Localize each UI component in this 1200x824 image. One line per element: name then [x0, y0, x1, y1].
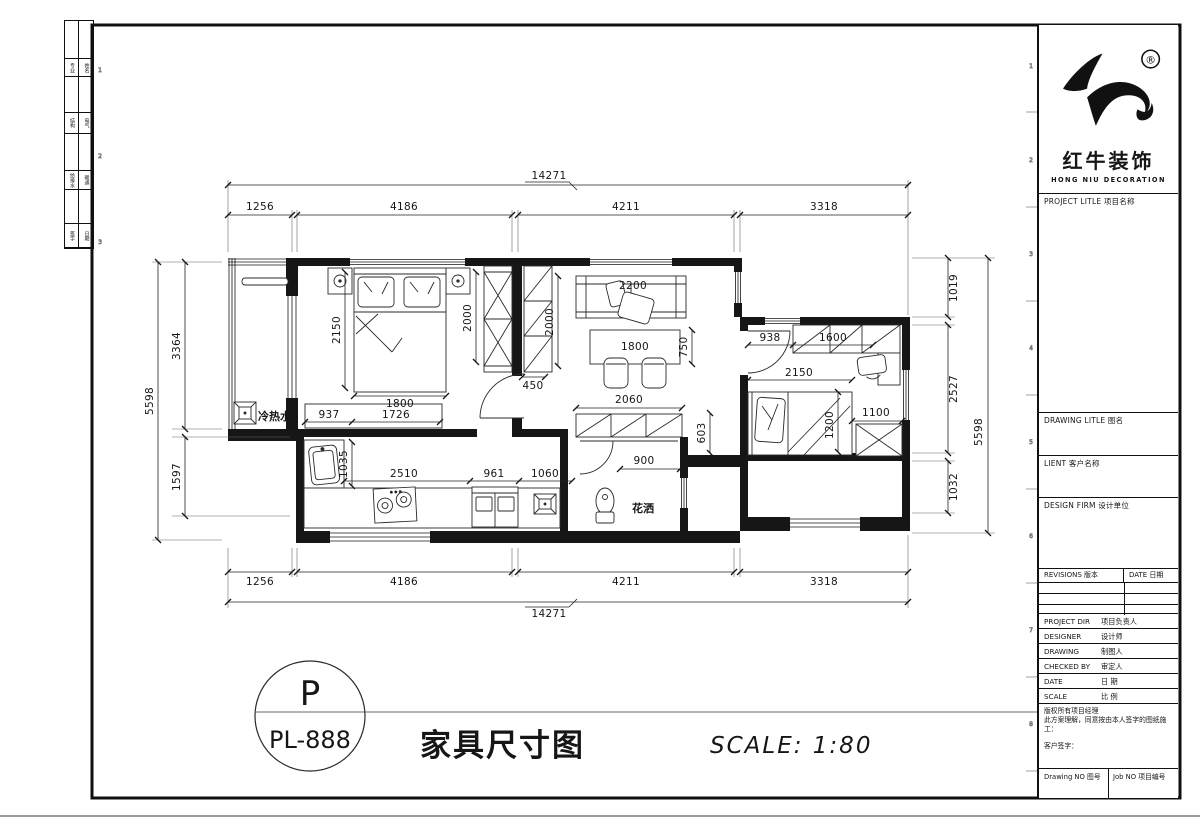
dim-left-3364: 3364	[171, 332, 183, 360]
drawing-title-label: DRAWING LITLE 图名	[1039, 413, 1178, 426]
credit-rows: PROJECT DIR 项目负责人 DESIGNER 设计师 DRAWING 制…	[1039, 613, 1178, 703]
note-line-3: 客户签字：	[1044, 742, 1176, 751]
signoff-empty-cell	[65, 77, 79, 113]
bath-door	[580, 441, 613, 474]
dim-sofa-2200: 2200	[619, 280, 647, 292]
note-line-2: 此方案理解，同意按由本人签字的图纸施工：	[1044, 716, 1176, 734]
fold-mark: 8	[1029, 721, 1033, 728]
signoff-empty-cell	[65, 21, 79, 59]
nightstand-left	[328, 268, 352, 294]
brand-logo-area: ® 红牛装饰 HONG NIU DECORATION	[1039, 25, 1178, 193]
dim-bottom-3318: 3318	[810, 576, 838, 588]
dim-kitchen-961: 961	[484, 468, 505, 480]
copyright-notes: 版权所有项目经理 此方案理解，同意按由本人签字的图纸施工： 客户签字：	[1039, 703, 1178, 768]
dim-top-1256: 1256	[246, 201, 274, 213]
drawing-title: 家具尺寸图	[420, 728, 585, 764]
number-row: Drawing NO 图号 Job NO 项目编号	[1039, 768, 1178, 798]
dim-top-4186: 4186	[390, 201, 418, 213]
dim-top-total: 14271	[532, 170, 567, 182]
floor-plan-drawing: 1 2 3 4 5 6 7 8 1 2 3	[0, 0, 1200, 824]
dim-kitchen-1035: 1035	[338, 450, 350, 478]
signoff-empty-cell	[79, 134, 93, 171]
dim-closet-450: 450	[523, 380, 544, 392]
dim-table-1800: 1800	[621, 341, 649, 353]
fold-mark: 2	[1029, 157, 1033, 164]
sheet-badge-number: PL-888	[269, 726, 351, 754]
dim-right-2527: 2527	[948, 375, 960, 403]
sheet-badge-letter: P	[300, 674, 321, 714]
washing-machine	[472, 487, 518, 527]
dim-shelf-938: 938	[760, 332, 781, 344]
dim-top-4211: 4211	[612, 201, 640, 213]
signoff-cell: 给排水	[65, 171, 79, 190]
dim-shelf-1600: 1600	[819, 332, 847, 344]
dim-bed2-1200: 1200	[824, 411, 836, 439]
dim-closet-2000-left: 2000	[462, 304, 474, 332]
dim-right-5598: 5598	[973, 418, 985, 446]
drawing-scale: SCALE: 1:80	[710, 733, 872, 759]
project-title-label: PROJECT LITLE 项目名称	[1039, 194, 1178, 207]
revision-row	[1039, 583, 1178, 594]
wardrobe-x	[484, 266, 512, 372]
project-title-section: PROJECT LITLE 项目名称	[1039, 193, 1178, 412]
signoff-empty-cell	[79, 190, 93, 224]
label-cold-hot-water: 冷热水	[258, 409, 292, 423]
revisions-date-label: DATE 日期	[1124, 569, 1163, 582]
bull-logo-icon: ®	[1054, 47, 1164, 139]
credit-row: CHECKED BY 审定人	[1039, 658, 1178, 673]
revision-row	[1039, 594, 1178, 605]
dim-kitchen-2510: 2510	[390, 468, 418, 480]
kitchen-sink	[308, 445, 340, 486]
fold-mark: 7	[1029, 627, 1033, 634]
double-bed	[354, 268, 446, 392]
signoff-cell: 专业	[65, 59, 79, 77]
extension-lines	[152, 180, 995, 608]
credit-row: DATE 日 期	[1039, 673, 1178, 688]
drawing-no-label: Drawing NO 图号	[1039, 769, 1109, 798]
brand-name-en: HONG NIU DECORATION	[1039, 176, 1178, 184]
strip-mark: 2	[98, 153, 102, 160]
dim-bottom-4186: 4186	[390, 576, 418, 588]
credit-row: SCALE 比 例	[1039, 688, 1178, 703]
revisions-table: REVISIONS 版本 DATE 日期	[1039, 568, 1178, 613]
drawing-title-section: DRAWING LITLE 图名	[1039, 412, 1178, 455]
design-firm-section: DESIGN FIRM 设计单位	[1039, 497, 1178, 568]
dim-bench-937: 937	[319, 409, 340, 421]
revisions-label: REVISIONS 版本	[1039, 569, 1124, 582]
dim-kitchen-1060: 1060	[531, 468, 559, 480]
single-bed	[748, 392, 852, 455]
credit-row: DESIGNER 设计师	[1039, 628, 1178, 643]
signoff-cell: 结构	[65, 113, 79, 134]
toilet	[596, 488, 614, 523]
dim-bottom-total: 14271	[532, 608, 567, 620]
dimension-lines	[158, 182, 988, 607]
kitchen-counter	[304, 488, 560, 528]
nightstand-right	[446, 268, 470, 294]
signoff-empty-cell	[65, 134, 79, 171]
client-label: LIENT 客户名称	[1039, 456, 1178, 469]
stove	[373, 487, 417, 523]
signoff-strip: 专业 姓名 结构 电气 给排水 暖通 签字 日期	[64, 20, 94, 249]
dim-right-1032: 1032	[948, 473, 960, 501]
footer: P PL-888 家具尺寸图 SCALE: 1:80	[255, 661, 1037, 771]
balcony-rail	[242, 278, 288, 285]
note-line-1: 版权所有项目经理	[1044, 707, 1176, 716]
signoff-cell: 电气	[79, 113, 93, 134]
credit-row: PROJECT DIR 项目负责人	[1039, 613, 1178, 628]
fold-mark: 5	[1029, 439, 1033, 446]
dining-chair	[642, 358, 666, 388]
signoff-cell: 暖通	[79, 171, 93, 190]
design-firm-label: DESIGN FIRM 设计单位	[1039, 498, 1178, 511]
dim-closet-2000-right: 2000	[544, 308, 556, 336]
registered-mark: ®	[1145, 53, 1156, 66]
client-section: LIENT 客户名称	[1039, 455, 1178, 497]
dim-right-1019: 1019	[948, 274, 960, 302]
signoff-empty-cell	[65, 190, 79, 224]
dim-table-750: 750	[678, 337, 690, 358]
dim-left-1597: 1597	[171, 463, 183, 491]
dining-chair	[604, 358, 628, 388]
water-point	[234, 402, 256, 424]
signoff-empty-cell	[79, 21, 93, 59]
dim-bottom-1256: 1256	[246, 576, 274, 588]
fold-mark: 4	[1029, 345, 1033, 352]
dim-top-3318: 3318	[810, 201, 838, 213]
strip-mark: 1	[98, 67, 102, 74]
bedroom-door	[480, 374, 524, 418]
floor-drain	[534, 494, 556, 514]
dim-left-5598: 5598	[144, 387, 156, 415]
hall-cabinet	[576, 414, 682, 441]
signoff-cell: 姓名	[79, 59, 93, 77]
signoff-cell: 日期	[79, 224, 93, 248]
job-no-label: Job NO 项目编号	[1109, 769, 1178, 798]
dim-bed-2150: 2150	[331, 316, 343, 344]
dim-hall-603: 603	[696, 423, 708, 444]
title-block: ® 红牛装饰 HONG NIU DECORATION PROJECT LITLE…	[1037, 25, 1178, 798]
credit-row: DRAWING 制图人	[1039, 643, 1178, 658]
dim-bed2-2150: 2150	[785, 367, 813, 379]
dimension-texts: 1256 4186 4211 3318 14271 1256 4186 4211…	[144, 170, 985, 620]
label-shower: 花洒	[632, 501, 654, 515]
dim-cab-1100: 1100	[862, 407, 890, 419]
dim-bench-1726: 1726	[382, 409, 410, 421]
signoff-cell: 签字	[65, 224, 79, 248]
fold-mark: 1	[1029, 63, 1033, 70]
dim-hall-2060: 2060	[615, 394, 643, 406]
dim-bottom-4211: 4211	[612, 576, 640, 588]
strip-mark: 3	[98, 239, 102, 246]
signoff-empty-cell	[79, 77, 93, 113]
brand-name-cn: 红牛装饰	[1039, 145, 1178, 174]
dim-bath-900: 900	[634, 455, 655, 467]
fold-mark: 3	[1029, 251, 1033, 258]
bed2-cabinet-x	[856, 424, 902, 456]
fold-mark: 6	[1029, 533, 1033, 540]
